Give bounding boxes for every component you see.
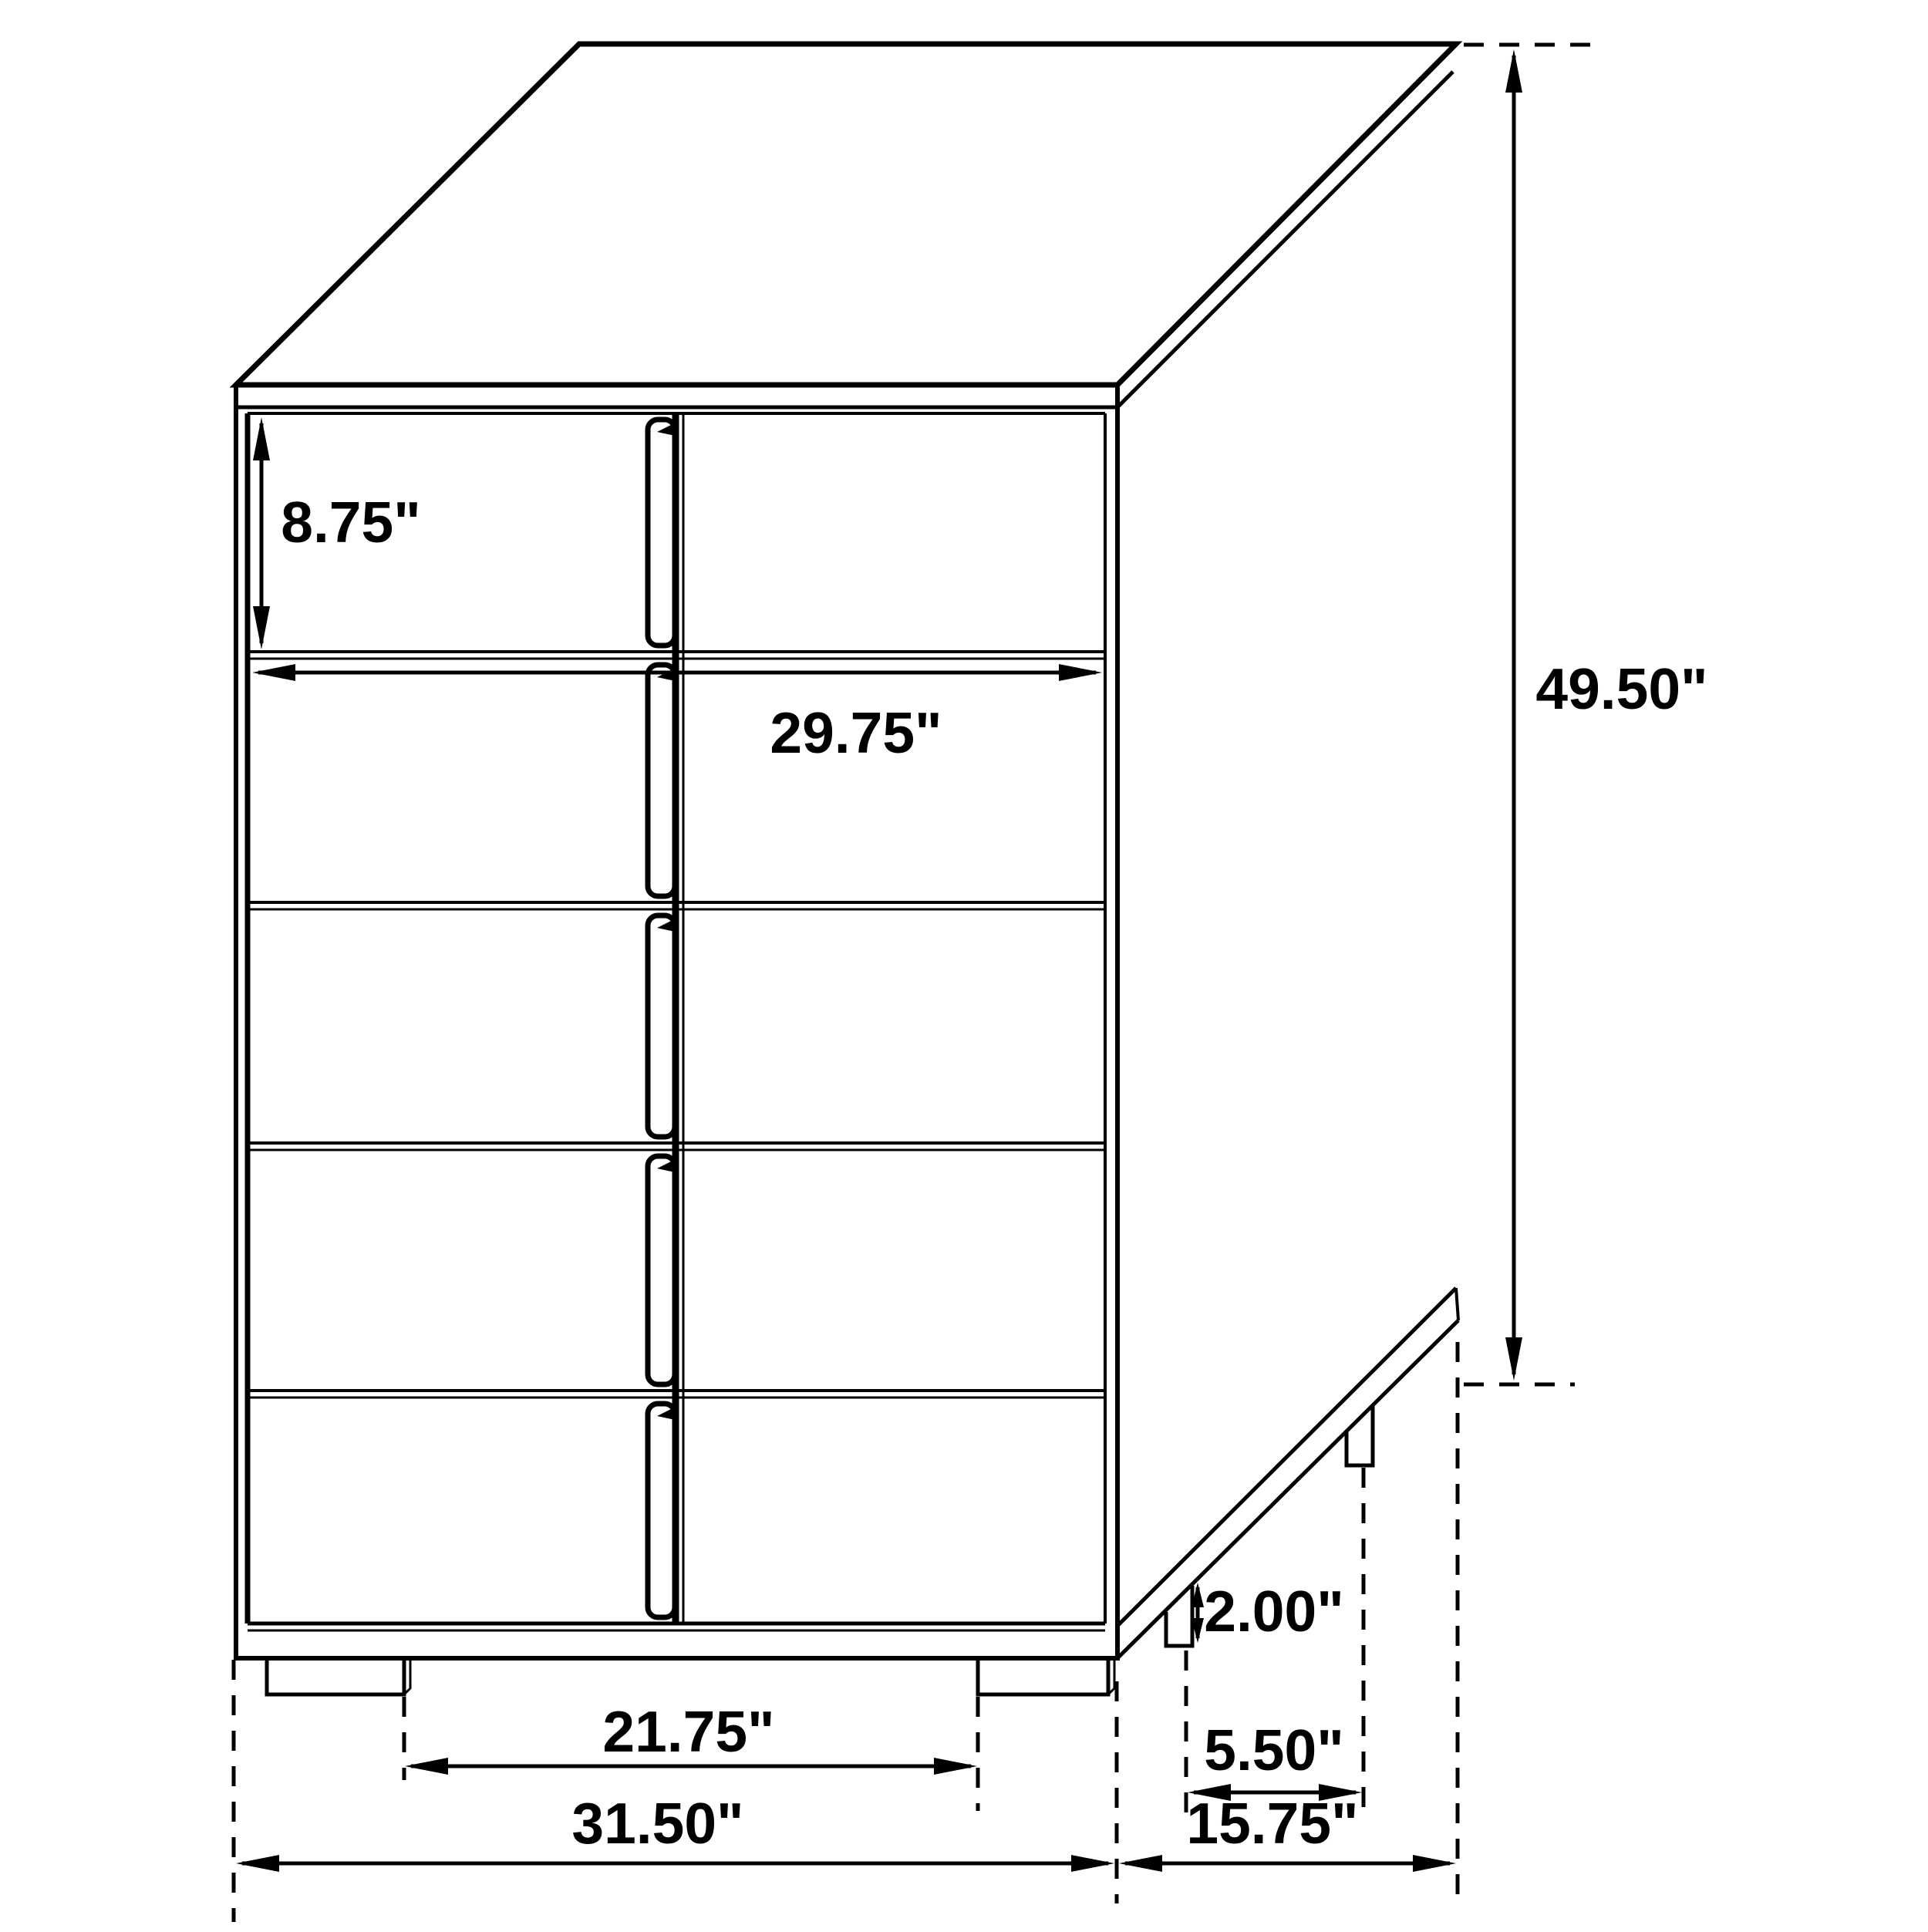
dim-drawer-height: 8.75" <box>253 417 421 649</box>
drawer-handle-top-edge <box>657 421 679 437</box>
drawer-handle <box>648 915 675 1137</box>
side-back-bottom-corner <box>1456 1288 1458 1320</box>
dim-leg-height-label: 2.00" <box>1204 1579 1344 1644</box>
dim-overall-height-label: 49.50" <box>1535 656 1707 721</box>
dim-drawer-width-label: 29.75" <box>770 700 942 765</box>
dim-overall-depth: 15.75" <box>1119 1791 1456 1872</box>
arrowhead-left <box>1119 1855 1162 1872</box>
arrowhead-right <box>1413 1855 1456 1872</box>
arrowhead-left <box>236 1855 279 1872</box>
arrowhead-right <box>1071 1855 1114 1872</box>
drawer-handle <box>648 1156 675 1384</box>
side-panel-bottom-edge <box>1117 1288 1456 1626</box>
dim-leg-depth-inset: 5.50" <box>1188 1718 1362 1801</box>
dim-leg-depth-inset-label: 5.50" <box>1204 1718 1344 1782</box>
dim-leg-height: 2.00" <box>1192 1579 1344 1644</box>
drawer-handle <box>648 420 675 646</box>
top-panel-side-edge <box>1117 72 1453 407</box>
arrowhead-left <box>252 664 295 681</box>
arrowhead-left <box>405 1758 448 1775</box>
side-back-leg <box>1347 1405 1373 1465</box>
drawer-handle-top-edge <box>657 1158 679 1173</box>
dim-drawer-height-label: 8.75" <box>281 490 421 555</box>
arrowhead-right <box>1059 664 1102 681</box>
arrowhead-up <box>1505 49 1522 93</box>
drawer-handle <box>648 665 675 896</box>
cabinet-outline <box>236 44 1456 1658</box>
front-right-leg <box>978 1658 1108 1694</box>
dim-overall-height: 49.50" <box>1505 49 1708 1381</box>
arrowhead-down <box>253 606 270 649</box>
drawer-handle <box>648 1404 675 1617</box>
drawer-center-pulls <box>648 413 683 1623</box>
front-left-leg <box>267 1658 404 1694</box>
arrowhead-up <box>253 417 270 460</box>
chest-dimension-drawing: 8.75" 29.75" 49.50" 2.00" 5.50" 21.75" <box>0 0 1928 1928</box>
arrowhead-down <box>1505 1337 1522 1381</box>
arrowhead-right <box>934 1758 977 1775</box>
drawer-handle-top-edge <box>657 917 679 932</box>
extension-lines <box>234 45 1590 1922</box>
dim-overall-depth-label: 15.75" <box>1186 1791 1358 1856</box>
cabinet-top-face <box>236 44 1456 385</box>
drawer-handle-top-edge <box>657 1405 679 1421</box>
dim-overall-width: 31.50" <box>236 1791 1114 1872</box>
dim-front-leg-spacing: 21.75" <box>405 1699 977 1775</box>
dim-overall-width-label: 31.50" <box>571 1791 743 1856</box>
dim-front-leg-spacing-label: 21.75" <box>602 1699 774 1764</box>
dimension-diagram-canvas: 8.75" 29.75" 49.50" 2.00" 5.50" 21.75" <box>0 0 1928 1928</box>
